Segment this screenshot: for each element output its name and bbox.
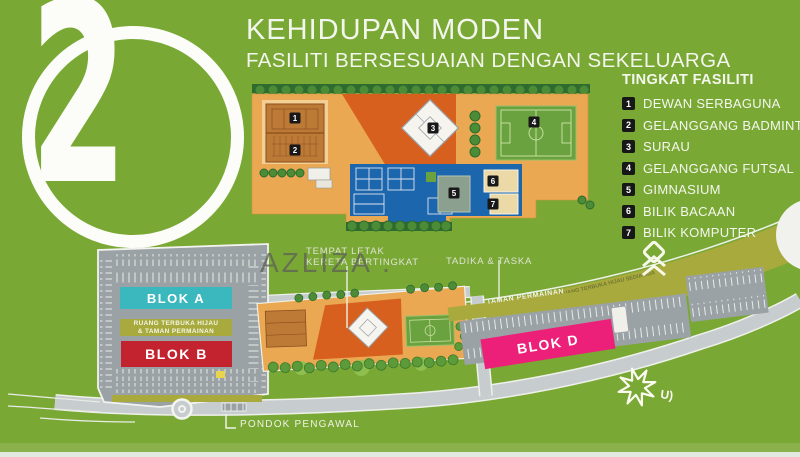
guard-house-label: PONDOK PENGAWAL — [240, 419, 360, 430]
roundabout — [173, 400, 192, 419]
blok-a-bar: BLOK A — [120, 287, 232, 309]
watermark: AZLIZA . — [260, 247, 393, 279]
pool-deck — [350, 164, 522, 222]
legend-item: 3SURAU — [622, 139, 800, 154]
facility-number-chip: 5 — [622, 183, 635, 196]
legend-item: 7BILIK KOMPUTER — [622, 225, 800, 240]
facility-marker-4: 4 — [529, 117, 540, 128]
legend-item: 4GELANGGANG FUTSAL — [622, 161, 800, 176]
svg-text:6: 6 — [491, 177, 496, 186]
guard-house — [222, 403, 246, 411]
facility-number-chip: 7 — [622, 226, 635, 239]
tree-row-left — [260, 169, 304, 177]
open-space-line2: & TAMAN PERMAINAN — [138, 328, 214, 336]
facility-marker-3: 3 — [428, 123, 439, 134]
parking-row — [112, 254, 260, 266]
bottom-edge-strip — [0, 452, 800, 457]
parking-column-left — [100, 256, 112, 390]
parking-row — [112, 272, 260, 285]
svg-text:7: 7 — [491, 200, 496, 209]
legend-item: 5GIMNASIUM — [622, 182, 800, 197]
small-building — [611, 306, 629, 334]
facility-number-chip: 2 — [622, 119, 635, 132]
parking-row — [112, 369, 260, 381]
facility-marker-5: 5 — [449, 188, 460, 199]
svg-text:2: 2 — [293, 146, 298, 155]
facility-label: GELANGGANG FUTSAL — [643, 161, 794, 176]
svg-text:3: 3 — [431, 124, 436, 133]
signature-text: U) — [660, 387, 674, 403]
legend-item: 2GELANGGANG BADMINTON — [622, 118, 800, 133]
facility-label: GELANGGANG BADMINTON — [643, 118, 800, 133]
facility-label: DEWAN SERBAGUNA — [643, 96, 781, 111]
tree-border-top — [252, 84, 590, 95]
header: KEHIDUPAN MODEN FASILITI BERSESUAIAN DEN… — [246, 14, 731, 73]
legend-title: TINGKAT FASILITI — [622, 72, 800, 88]
svg-text:4: 4 — [532, 118, 537, 127]
facility-marker-6: 6 — [488, 176, 499, 187]
facility-number-chip: 4 — [622, 162, 635, 175]
slide: 2 KEHIDUPAN MODEN FASILITI BERSESUAIAN D… — [0, 0, 800, 457]
facility-legend: TINGKAT FASILITI 1DEWAN SERBAGUNA 2GELAN… — [622, 72, 800, 247]
open-space-line1: RUANG TERBUKA HIJAU — [134, 320, 219, 328]
tadika-label: TADIKA & TASKA — [446, 256, 532, 267]
facility-number-chip: 6 — [622, 205, 635, 218]
parking-row — [116, 383, 260, 393]
facility-number-chip: 3 — [622, 140, 635, 153]
facility-label: BILIK KOMPUTER — [643, 225, 756, 240]
facility-floor-plan: 1 2 3 4 5 6 7 — [238, 76, 602, 242]
bottom-light-band — [0, 443, 800, 452]
futsal-ground — [406, 315, 455, 347]
facility-marker-1: 1 — [290, 113, 301, 124]
facility-marker-7: 7 — [488, 199, 499, 210]
open-space-bar: RUANG TERBUKA HIJAU & TAMAN PERMAINAN — [120, 319, 232, 336]
futsal-court — [496, 106, 576, 160]
facility-marker-2: 2 — [290, 145, 301, 156]
guard-house-leader — [226, 414, 236, 428]
svg-text:5: 5 — [452, 189, 457, 198]
yellow-structure — [216, 371, 225, 378]
page-title: KEHIDUPAN MODEN — [246, 14, 731, 47]
facility-number-chip: 1 — [622, 97, 635, 110]
page-subtitle: FASILITI BERSESUAIAN DENGAN SEKELUARGA — [246, 49, 731, 73]
court-ground — [265, 310, 306, 347]
facility-label: GIMNASIUM — [643, 182, 721, 197]
svg-text:1: 1 — [293, 114, 298, 123]
legend-item: 6BILIK BACAAN — [622, 204, 800, 219]
legend-item: 1DEWAN SERBAGUNA — [622, 96, 800, 111]
blok-b-bar: BLOK B — [121, 341, 232, 367]
facility-label: BILIK BACAAN — [643, 204, 735, 219]
facility-label: SURAU — [643, 139, 690, 154]
